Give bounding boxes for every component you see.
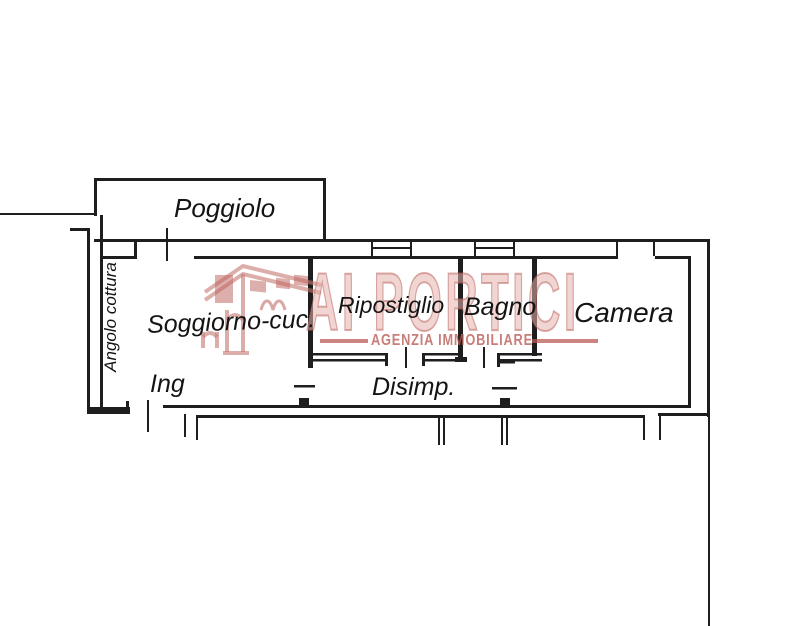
floorplan-page: AI PORTICI AGENZIA IMMOBILIARE Poggiolo … [0,0,800,626]
window-symbol [474,241,515,256]
room-label-angolo-cottura-text: Angolo cottura [101,262,121,372]
room-label-poggiolo: Poggiolo [174,193,275,224]
room-label-soggiorno: Soggiorno-cuc. [147,305,316,340]
room-label-bagno: Bagno [464,293,536,322]
boundary-cut-line [0,213,96,215]
room-label-camera: Camera [574,297,674,329]
window-symbol [371,241,412,256]
room-label-angolo-cottura: Angolo cottura [92,240,130,394]
room-label-ingresso: Ing [150,370,185,399]
terrace-wall-stubs [184,414,661,445]
room-label-disimpegno: Disimp. [372,373,455,402]
outer-walls [70,215,710,626]
room-label-ripostiglio: Ripostiglio [338,292,444,319]
top-wall-inner-lines [100,241,691,259]
